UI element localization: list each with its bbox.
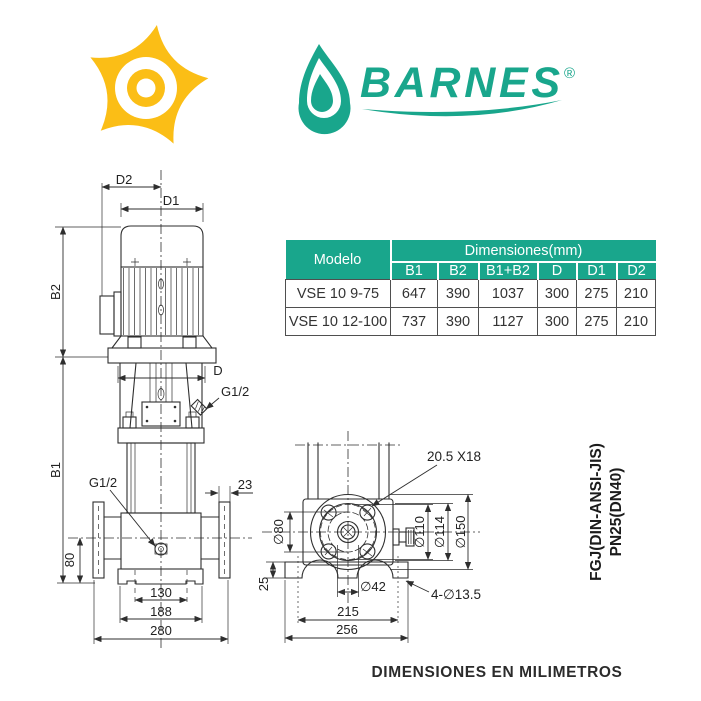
pump-datasheet-page: BARNES ® <box>0 0 701 701</box>
model-name-cell: VSE 10 12-100 <box>286 308 391 336</box>
dim-label-b1: B1 <box>48 462 63 478</box>
value-cell: 300 <box>538 280 577 308</box>
dim-label-b2: B2 <box>48 284 63 300</box>
table-col-d1: D1 <box>577 262 617 280</box>
datasheet-drawing: BARNES ® <box>0 0 701 701</box>
dim-label-d42: ∅42 <box>360 579 386 594</box>
dim-label-25: 25 <box>256 577 271 591</box>
front-view-dimensions: D2 D1 B2 B1 D G1/2 G1/2 23 80 130 188 28… <box>48 172 253 644</box>
dim-label-130: 130 <box>150 585 172 600</box>
flange-standard-note-line1: FGJ(DIN-ANSI-JIS) <box>588 443 605 581</box>
table-row: VSE 10 9-75 647 390 1037 300 275 210 <box>286 280 656 308</box>
dim-label-80: 80 <box>62 553 77 567</box>
table-header-model: Modelo <box>286 240 391 280</box>
value-cell: 300 <box>538 308 577 336</box>
table-row: VSE 10 12-100 737 390 1127 300 275 210 <box>286 308 656 336</box>
value-cell: 737 <box>391 308 438 336</box>
dim-label-holes: 4-∅13.5 <box>431 587 481 602</box>
value-cell: 647 <box>391 280 438 308</box>
drain-label-g12: G1/2 <box>89 475 117 490</box>
table-col-d2: D2 <box>617 262 656 280</box>
dim-label-d: D <box>213 363 222 378</box>
dim-label-188: 188 <box>150 604 172 619</box>
model-name-cell: VSE 10 9-75 <box>286 280 391 308</box>
impeller-logo-icon <box>90 25 208 144</box>
dim-label-slot: 20.5 X18 <box>427 449 481 464</box>
value-cell: 275 <box>577 308 617 336</box>
dim-label-256: 256 <box>336 622 358 637</box>
dim-label-d150: ∅150 <box>453 515 468 548</box>
units-caption: DIMENSIONES EN MILIMETROS <box>372 664 623 681</box>
value-cell: 210 <box>617 280 656 308</box>
water-drop-icon <box>299 44 351 134</box>
dim-label-23: 23 <box>238 477 252 492</box>
table-col-d: D <box>538 262 577 280</box>
side-plug <box>393 528 414 546</box>
top-view-dimensions: 20.5 X18 ∅80 ∅110 ∅114 ∅150 ∅42 4-∅13.5 … <box>256 449 481 643</box>
vent-label-g12: G1/2 <box>221 384 249 399</box>
value-cell: 1127 <box>479 308 538 336</box>
table-col-b1: B1 <box>391 262 438 280</box>
brand-name: BARNES <box>360 59 560 107</box>
dim-label-d110: ∅110 <box>412 516 427 548</box>
barnes-logo: BARNES ® <box>299 44 576 134</box>
dim-label-215: 215 <box>337 604 359 619</box>
dim-label-d1: D1 <box>163 193 180 208</box>
dimension-table: Modelo Dimensiones(mm) B1 B2 B1+B2 D D1 … <box>285 240 656 336</box>
dim-label-d2: D2 <box>116 172 133 187</box>
value-cell: 275 <box>577 280 617 308</box>
vent-fitting <box>191 400 207 416</box>
registered-mark: ® <box>564 65 575 82</box>
dim-label-d114: ∅114 <box>432 516 447 548</box>
table-col-b2: B2 <box>438 262 479 280</box>
pump-front-view-drawing <box>68 170 252 650</box>
flange-standard-note-line2: PN25(DN40) <box>608 468 625 557</box>
value-cell: 390 <box>438 280 479 308</box>
value-cell: 390 <box>438 308 479 336</box>
value-cell: 1037 <box>479 280 538 308</box>
table-header-dimensions: Dimensiones(mm) <box>391 240 656 262</box>
dim-label-d80: ∅80 <box>271 519 286 545</box>
table-col-b1b2: B1+B2 <box>479 262 538 280</box>
dim-label-280: 280 <box>150 623 172 638</box>
value-cell: 210 <box>617 308 656 336</box>
